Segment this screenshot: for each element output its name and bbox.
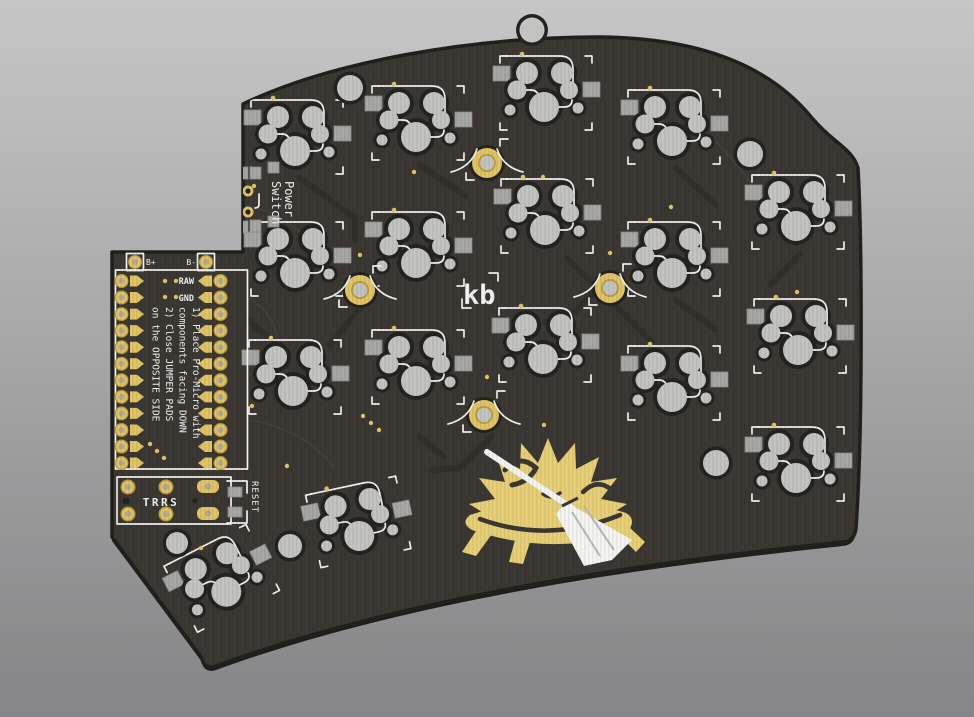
pcb-3d-viewport[interactable]: B+ B- RAW GND 1) Place Pro-Micro with co… — [0, 0, 974, 717]
edge-hole — [516, 14, 548, 46]
pcb-render: B+ B- RAW GND 1) Place Pro-Micro with co… — [0, 0, 974, 717]
board-texture — [100, 20, 880, 700]
